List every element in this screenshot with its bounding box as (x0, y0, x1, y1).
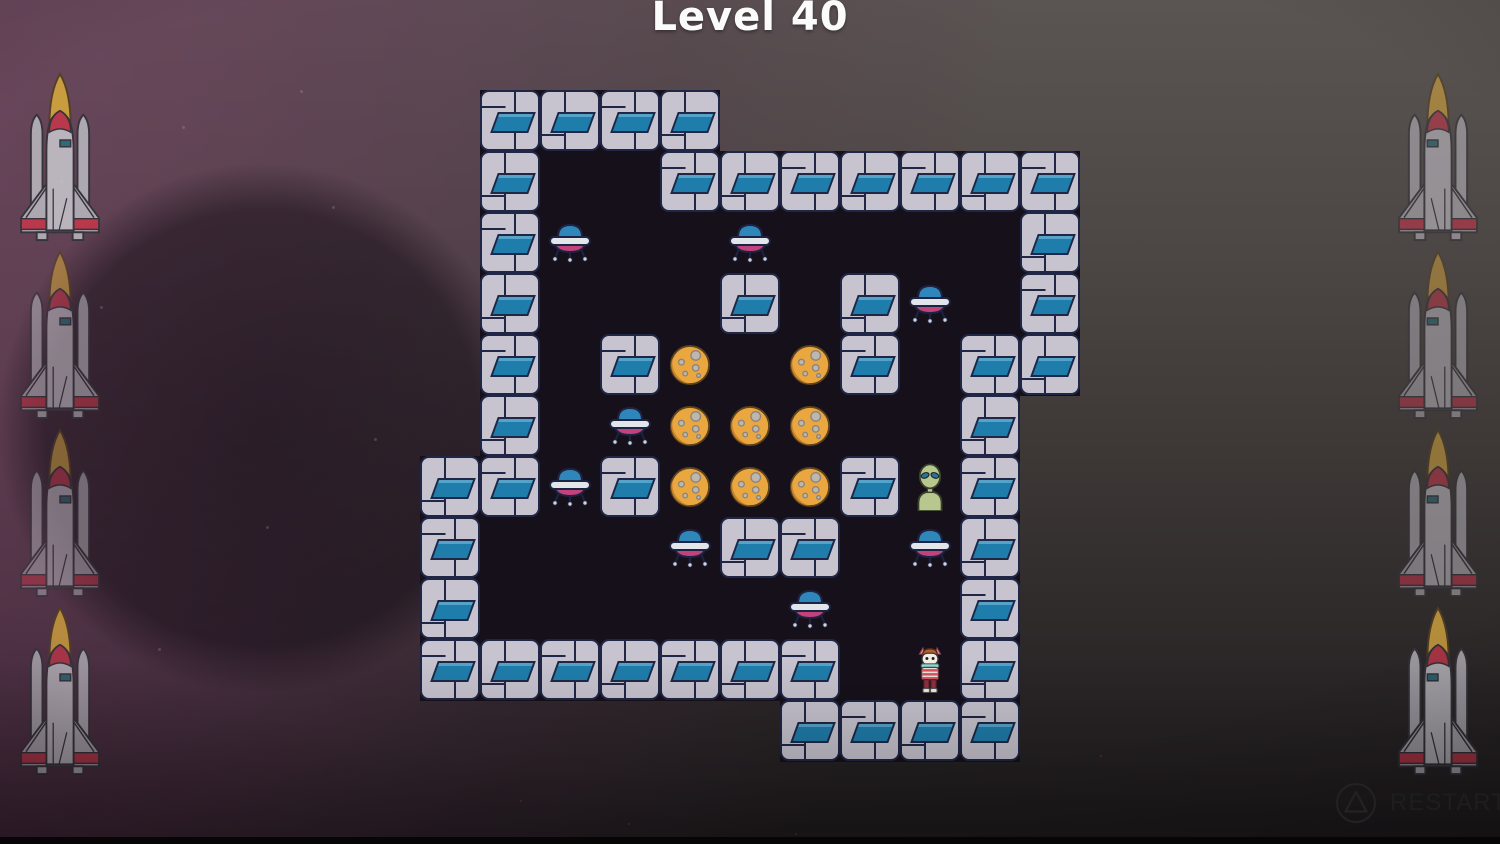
tile-panel (790, 173, 836, 194)
tile-panel (790, 661, 836, 682)
wall-tile (600, 639, 660, 700)
wall-tile (600, 90, 660, 151)
tile-panel (490, 356, 536, 377)
wall-tile (720, 273, 780, 334)
wall-tile (480, 395, 540, 456)
tile-panel (610, 356, 656, 377)
tile-panel (490, 112, 536, 133)
tile-panel (490, 234, 536, 255)
wall-tile (720, 151, 780, 212)
wall-tile (720, 517, 780, 578)
wall-tile (540, 639, 600, 700)
restart-button[interactable]: RESTART (1335, 782, 1500, 824)
tile-panel (490, 417, 536, 438)
tile-panel (910, 722, 956, 743)
wall-tile (900, 151, 960, 212)
tile-panel (610, 661, 656, 682)
wall-tile (960, 151, 1020, 212)
ufo-icon (540, 456, 600, 517)
moon-icon (660, 395, 720, 456)
tile-panel (1030, 234, 1076, 255)
triangle-button-icon (1335, 782, 1377, 824)
wall-tile (660, 151, 720, 212)
wall-tile (480, 334, 540, 395)
ufo-icon (660, 517, 720, 578)
tile-panel (850, 295, 896, 316)
wall-tile (420, 517, 480, 578)
star-dot (182, 126, 185, 129)
restart-label: RESTART (1390, 789, 1500, 817)
wall-tile (840, 456, 900, 517)
tile-panel (610, 478, 656, 499)
tile-panel (970, 173, 1016, 194)
tile-panel (670, 173, 716, 194)
tile-panel (790, 722, 836, 743)
wall-tile (960, 517, 1020, 578)
space-shuttle-decoration (16, 428, 104, 598)
tile-panel (550, 112, 596, 133)
star-dot (332, 206, 335, 209)
tile-panel (1030, 295, 1076, 316)
tile-panel (430, 478, 476, 499)
ufo-icon (900, 517, 960, 578)
tile-panel (1030, 173, 1076, 194)
star-dot (266, 526, 269, 529)
wall-tile (780, 639, 840, 700)
star-dot (795, 833, 797, 835)
moon-icon (720, 456, 780, 517)
tile-panel (490, 478, 536, 499)
wall-tile (1020, 334, 1080, 395)
space-shuttle-decoration (16, 250, 104, 420)
star-dot (374, 438, 377, 441)
ufo-icon (600, 395, 660, 456)
wall-tile (420, 456, 480, 517)
wall-tile (900, 700, 960, 761)
tile-panel (970, 417, 1016, 438)
star-dot (158, 648, 161, 651)
space-shuttle-decoration (1394, 250, 1482, 420)
wall-tile (600, 456, 660, 517)
tile-panel (430, 539, 476, 560)
ufo-icon (540, 212, 600, 273)
moon-icon (660, 456, 720, 517)
alien-icon (900, 456, 960, 517)
wall-tile (660, 90, 720, 151)
tile-panel (850, 173, 896, 194)
wall-tile (1020, 212, 1080, 273)
tile-panel (730, 295, 776, 316)
wall-tile (840, 700, 900, 761)
floor-area (480, 273, 1080, 335)
floor-area (420, 578, 1020, 640)
tile-panel (790, 539, 836, 560)
wall-tile (480, 90, 540, 151)
ufo-icon (780, 578, 840, 639)
space-shuttle-decoration (1394, 428, 1482, 598)
wall-tile (960, 456, 1020, 517)
moon-icon (780, 456, 840, 517)
tile-panel (730, 539, 776, 560)
tile-panel (670, 661, 716, 682)
wall-tile (840, 273, 900, 334)
moon-icon (780, 334, 840, 395)
ufo-icon (720, 212, 780, 273)
tile-panel (550, 661, 596, 682)
star-dot (300, 90, 303, 93)
space-shuttle-decoration (1394, 606, 1482, 776)
star-dot (1100, 755, 1102, 757)
tile-panel (730, 661, 776, 682)
page-title: Level 40 (0, 0, 1500, 40)
level-grid (420, 90, 1080, 761)
space-shuttle-decoration (16, 606, 104, 776)
wall-tile (420, 578, 480, 639)
tile-panel (970, 539, 1016, 560)
wall-tile (600, 334, 660, 395)
tile-panel (970, 600, 1016, 621)
tile-panel (970, 722, 1016, 743)
ufo-icon (900, 273, 960, 334)
moon-icon (780, 395, 840, 456)
star-dot (520, 800, 522, 802)
wall-tile (960, 395, 1020, 456)
tile-panel (910, 173, 956, 194)
tile-panel (1030, 356, 1076, 377)
wall-tile (960, 700, 1020, 761)
wall-tile (960, 578, 1020, 639)
tile-panel (490, 295, 536, 316)
space-shuttle-decoration (16, 72, 104, 242)
wall-tile (540, 90, 600, 151)
wall-tile (780, 517, 840, 578)
wall-tile (480, 212, 540, 273)
moon-icon (660, 334, 720, 395)
wall-tile (780, 700, 840, 761)
tile-panel (850, 722, 896, 743)
tile-panel (970, 478, 1016, 499)
wall-tile (660, 639, 720, 700)
wall-tile (840, 151, 900, 212)
wall-tile (480, 273, 540, 334)
star-dot (628, 823, 630, 825)
tile-panel (850, 478, 896, 499)
tile-panel (730, 173, 776, 194)
tile-panel (670, 112, 716, 133)
wall-tile (720, 639, 780, 700)
wall-tile (840, 334, 900, 395)
wall-tile (1020, 151, 1080, 212)
wall-tile (960, 334, 1020, 395)
tile-panel (850, 356, 896, 377)
player-character (900, 639, 960, 700)
wall-tile (1020, 273, 1080, 334)
moon-icon (720, 395, 780, 456)
tile-panel (970, 661, 1016, 682)
wall-tile (480, 151, 540, 212)
tile-panel (430, 600, 476, 621)
wall-tile (780, 151, 840, 212)
game-screen: Level 40 RESTART (0, 0, 1500, 844)
letterbox-bar (0, 837, 1500, 844)
tile-panel (430, 661, 476, 682)
tile-panel (970, 356, 1016, 377)
space-shuttle-decoration (1394, 72, 1482, 242)
tile-panel (610, 112, 656, 133)
tile-panel (490, 661, 536, 682)
wall-tile (960, 639, 1020, 700)
wall-tile (420, 639, 480, 700)
wall-tile (480, 639, 540, 700)
tile-panel (490, 173, 536, 194)
wall-tile (480, 456, 540, 517)
